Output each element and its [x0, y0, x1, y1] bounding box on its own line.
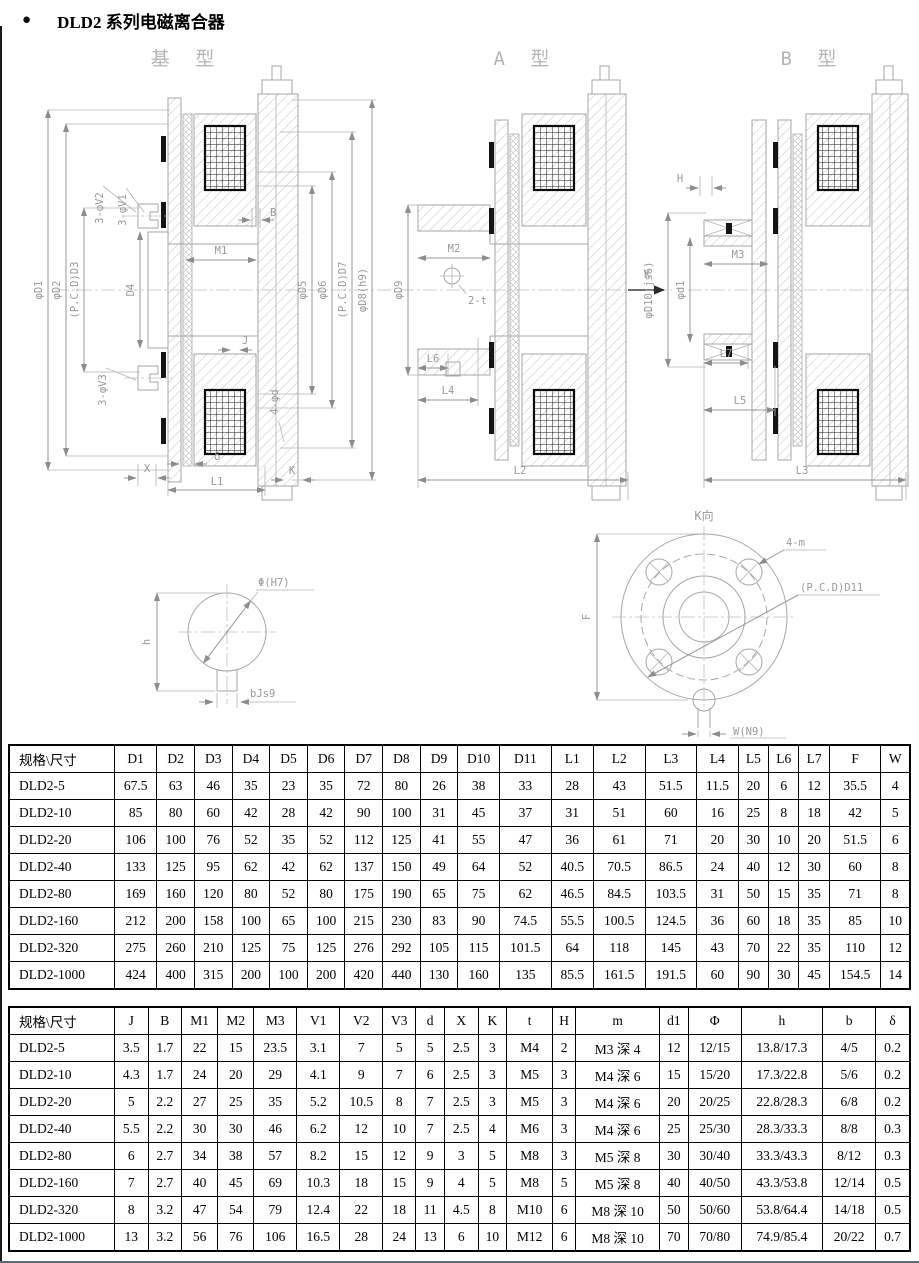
value-cell: 158: [194, 908, 232, 935]
value-cell: 24: [697, 854, 739, 881]
value-cell: 46: [194, 773, 232, 800]
value-cell: 75: [458, 881, 500, 908]
value-cell: 60: [829, 854, 881, 881]
value-cell: 20/25: [688, 1089, 741, 1116]
value-cell: 20: [697, 827, 739, 854]
column-header: V3: [383, 1007, 416, 1035]
value-cell: 86.5: [645, 854, 697, 881]
column-header: L3: [645, 745, 697, 773]
dim-label-D4: D4: [125, 284, 137, 297]
value-cell: 118: [593, 935, 645, 962]
column-header: D9: [420, 745, 458, 773]
value-cell: 7: [416, 1089, 445, 1116]
value-cell: 24: [383, 1224, 416, 1252]
table-row: DLD2-104.31.72420294.19762.53M53M4 深 615…: [9, 1062, 910, 1089]
catalog-page: { "page": { "bullet": "●", "title": "DLD…: [0, 0, 919, 1263]
value-cell: 106: [115, 827, 157, 854]
value-cell: 2.5: [445, 1089, 479, 1116]
value-cell: 85.5: [551, 962, 593, 990]
value-cell: 6.2: [297, 1116, 340, 1143]
value-cell: 6/8: [823, 1089, 876, 1116]
dim-label-K-base: K: [289, 465, 296, 477]
value-cell: 13: [115, 1224, 149, 1252]
value-cell: 101.5: [500, 935, 552, 962]
value-cell: 64: [458, 854, 500, 881]
column-header: K: [478, 1007, 507, 1035]
value-cell: 40.5: [551, 854, 593, 881]
value-cell: 45: [799, 962, 829, 990]
value-cell: 160: [157, 881, 195, 908]
table-row: DLD2-1000133.2567610616.5282413610M126M8…: [9, 1224, 910, 1252]
value-cell: 3: [478, 1035, 507, 1062]
dim-label-2t: 2-t: [468, 295, 487, 307]
dim-label-H: H: [677, 173, 683, 185]
value-cell: 5: [478, 1143, 507, 1170]
value-cell: 22.8/28.3: [741, 1089, 822, 1116]
table-row: DLD2-32027526021012575125276292105115101…: [9, 935, 910, 962]
value-cell: 36: [697, 908, 739, 935]
base-type-view: 基 型: [33, 48, 392, 500]
value-cell: 0.5: [876, 1170, 910, 1197]
value-cell: 12: [340, 1116, 383, 1143]
value-cell: 18: [769, 908, 799, 935]
column-header: t: [507, 1007, 553, 1035]
value-cell: 10: [383, 1116, 416, 1143]
value-cell: 125: [232, 935, 270, 962]
value-cell: 20: [218, 1062, 254, 1089]
value-cell: 50: [659, 1197, 688, 1224]
column-header: b: [823, 1007, 876, 1035]
value-cell: 38: [458, 773, 500, 800]
value-cell: 10: [881, 908, 910, 935]
value-cell: 30: [182, 1116, 218, 1143]
value-cell: 29: [254, 1062, 297, 1089]
value-cell: 161.5: [593, 962, 645, 990]
value-cell: 51.5: [829, 827, 881, 854]
value-cell: 12: [659, 1035, 688, 1062]
value-cell: M8: [507, 1143, 553, 1170]
keyway-dimensions: h Φ(H7) bJs9: [141, 577, 314, 708]
value-cell: 137: [345, 854, 383, 881]
value-cell: 106: [254, 1224, 297, 1252]
value-cell: 424: [115, 962, 157, 990]
value-cell: 6: [115, 1143, 149, 1170]
value-cell: 20: [799, 827, 829, 854]
dim-label-phiD2: φD2: [51, 281, 63, 300]
column-header: m: [576, 1007, 660, 1035]
value-cell: 5: [383, 1035, 416, 1062]
k-direction-view: K向 F 4-m: [581, 508, 880, 738]
value-cell: 64: [551, 935, 593, 962]
value-cell: 169: [115, 881, 157, 908]
value-cell: M3 深 4: [576, 1035, 660, 1062]
dim-label-3phiV2: 3-φV2: [94, 192, 106, 224]
value-cell: 50: [738, 881, 768, 908]
value-cell: 28: [551, 773, 593, 800]
column-header: d1: [659, 1007, 688, 1035]
dim-label-delta: δ: [214, 451, 220, 463]
column-header: d: [416, 1007, 445, 1035]
value-cell: 3: [478, 1089, 507, 1116]
spec-cell: DLD2-1000: [9, 1224, 115, 1252]
value-cell: 56: [182, 1224, 218, 1252]
table-row: DLD2-20106100765235521121254155473661712…: [9, 827, 910, 854]
value-cell: 0.2: [876, 1062, 910, 1089]
value-cell: 67.5: [115, 773, 157, 800]
value-cell: 25: [218, 1089, 254, 1116]
dim-label-phiD5: φD5: [297, 281, 309, 300]
value-cell: 70.5: [593, 854, 645, 881]
value-cell: 45: [218, 1170, 254, 1197]
value-cell: 38: [218, 1143, 254, 1170]
value-cell: 42: [307, 800, 345, 827]
column-header: D5: [270, 745, 308, 773]
column-header: D10: [458, 745, 500, 773]
a-type-view: A 型: [393, 48, 672, 500]
value-cell: 7: [383, 1062, 416, 1089]
value-cell: 5: [115, 1089, 149, 1116]
value-cell: 8/12: [823, 1143, 876, 1170]
spec-cell: DLD2-160: [9, 908, 115, 935]
value-cell: 10.5: [340, 1089, 383, 1116]
value-cell: 40/50: [688, 1170, 741, 1197]
value-cell: 112: [345, 827, 383, 854]
dim-label-WN9: W(N9): [733, 726, 765, 738]
dim-label-B: B: [270, 207, 276, 219]
value-cell: 150: [383, 854, 421, 881]
value-cell: 1.7: [148, 1062, 182, 1089]
value-cell: 12: [799, 773, 829, 800]
spec-cell: DLD2-40: [9, 854, 115, 881]
value-cell: 69: [254, 1170, 297, 1197]
column-header: L4: [697, 745, 739, 773]
value-cell: 5.5: [115, 1116, 149, 1143]
value-cell: 18: [799, 800, 829, 827]
value-cell: 42: [232, 800, 270, 827]
dim-label-pcdD7-label: φD6: [317, 281, 329, 300]
value-cell: 90: [345, 800, 383, 827]
column-header: 规格\尺寸: [9, 1007, 115, 1035]
column-header: L7: [799, 745, 829, 773]
value-cell: 0.2: [876, 1035, 910, 1062]
value-cell: 3: [552, 1089, 576, 1116]
dim-label-L3: L3: [796, 465, 809, 477]
dim-label-phiD1: φD1: [33, 281, 45, 300]
table-row: DLD2-10004244003152001002004204401301601…: [9, 962, 910, 990]
value-cell: 54: [218, 1197, 254, 1224]
column-header: D8: [383, 745, 421, 773]
spec-cell: DLD2-5: [9, 773, 115, 800]
column-header: B: [148, 1007, 182, 1035]
b-body: [688, 66, 912, 500]
value-cell: 4.1: [297, 1062, 340, 1089]
value-cell: 4/5: [823, 1035, 876, 1062]
column-header: V2: [340, 1007, 383, 1035]
value-cell: 315: [194, 962, 232, 990]
column-header: W: [881, 745, 910, 773]
value-cell: 22: [340, 1197, 383, 1224]
column-header: J: [115, 1007, 149, 1035]
value-cell: 215: [345, 908, 383, 935]
value-cell: 14: [881, 962, 910, 990]
value-cell: 74.5: [500, 908, 552, 935]
value-cell: 12: [769, 854, 799, 881]
dim-label-3phiV3: 3-φV3: [97, 374, 109, 406]
value-cell: 2.5: [445, 1116, 479, 1143]
dim-label-pcdD3: (P.C.D)D3: [69, 262, 81, 319]
dim-label-M3: M3: [732, 249, 745, 261]
value-cell: 23: [270, 773, 308, 800]
value-cell: 70: [659, 1224, 688, 1252]
value-cell: 130: [420, 962, 458, 990]
value-cell: 15: [340, 1143, 383, 1170]
value-cell: 8.2: [297, 1143, 340, 1170]
value-cell: 53.8/64.4: [741, 1197, 822, 1224]
value-cell: 25: [659, 1116, 688, 1143]
value-cell: M10: [507, 1197, 553, 1224]
value-cell: 40: [738, 854, 768, 881]
value-cell: 2.2: [148, 1116, 182, 1143]
value-cell: 1.7: [148, 1035, 182, 1062]
dim-label-J: J: [242, 335, 248, 347]
value-cell: M4 深 6: [576, 1089, 660, 1116]
value-cell: 4: [881, 773, 910, 800]
value-cell: 191.5: [645, 962, 697, 990]
value-cell: 0.7: [876, 1224, 910, 1252]
value-cell: 16.5: [297, 1224, 340, 1252]
value-cell: M5 深 8: [576, 1143, 660, 1170]
dim-label-L7: L7: [720, 348, 733, 360]
value-cell: 25: [738, 800, 768, 827]
value-cell: 9: [416, 1143, 445, 1170]
value-cell: 260: [157, 935, 195, 962]
value-cell: 9: [416, 1170, 445, 1197]
value-cell: 15: [769, 881, 799, 908]
value-cell: 125: [157, 854, 195, 881]
value-cell: 71: [829, 881, 881, 908]
table-row: DLD2-10858060422842901003145373151601625…: [9, 800, 910, 827]
value-cell: 2.5: [445, 1035, 479, 1062]
value-cell: 20: [738, 773, 768, 800]
dim-label-L1: L1: [211, 476, 224, 488]
value-cell: 200: [232, 962, 270, 990]
value-cell: 16: [697, 800, 739, 827]
value-cell: 17.3/22.8: [741, 1062, 822, 1089]
table-row: DLD2-8016916012080528017519065756246.584…: [9, 881, 910, 908]
value-cell: 3: [552, 1062, 576, 1089]
value-cell: 12/14: [823, 1170, 876, 1197]
value-cell: 28.3/33.3: [741, 1116, 822, 1143]
spec-cell: DLD2-5: [9, 1035, 115, 1062]
value-cell: 51.5: [645, 773, 697, 800]
value-cell: M4 深 6: [576, 1062, 660, 1089]
value-cell: 0.5: [876, 1197, 910, 1224]
value-cell: M8: [507, 1170, 553, 1197]
value-cell: 100: [307, 908, 345, 935]
page-title: DLD2 系列电磁离合器: [57, 8, 225, 33]
dim-label-L5: L5: [734, 395, 747, 407]
value-cell: 27: [182, 1089, 218, 1116]
value-cell: 31: [551, 800, 593, 827]
column-header: M1: [182, 1007, 218, 1035]
value-cell: 0.2: [876, 1089, 910, 1116]
dim-label-L4: L4: [442, 385, 455, 397]
value-cell: 31: [420, 800, 458, 827]
value-cell: 20/22: [823, 1224, 876, 1252]
value-cell: 200: [307, 962, 345, 990]
value-cell: 105: [420, 935, 458, 962]
value-cell: 35: [799, 881, 829, 908]
value-cell: 42: [829, 800, 881, 827]
value-cell: 80: [307, 881, 345, 908]
value-cell: 52: [232, 827, 270, 854]
table-row: DLD2-2052.22725355.210.5872.53M53M4 深 62…: [9, 1089, 910, 1116]
value-cell: 30: [218, 1116, 254, 1143]
value-cell: 4: [445, 1170, 479, 1197]
value-cell: 74.9/85.4: [741, 1224, 822, 1252]
value-cell: 37: [500, 800, 552, 827]
value-cell: M5: [507, 1089, 553, 1116]
value-cell: 90: [458, 908, 500, 935]
column-header: D2: [157, 745, 195, 773]
column-header: D1: [115, 745, 157, 773]
spec-cell: DLD2-80: [9, 881, 115, 908]
spec-cell: DLD2-10: [9, 1062, 115, 1089]
column-header: D3: [194, 745, 232, 773]
value-cell: 62: [500, 881, 552, 908]
column-header: M2: [218, 1007, 254, 1035]
dim-label-phid1: φd1: [675, 281, 687, 300]
value-cell: 80: [157, 800, 195, 827]
value-cell: 80: [232, 881, 270, 908]
value-cell: 85: [829, 908, 881, 935]
technical-drawings: 基 型: [0, 36, 919, 742]
value-cell: 62: [307, 854, 345, 881]
dim-label-phiH7: Φ(H7): [258, 577, 290, 589]
value-cell: 4.3: [115, 1062, 149, 1089]
column-header: V1: [297, 1007, 340, 1035]
dimensions-table-2: 规格\尺寸JBM1M2M3V1V2V3dXKtHmd1ΦhbδDLD2-53.5…: [8, 1006, 911, 1252]
value-cell: 24: [182, 1062, 218, 1089]
value-cell: 124.5: [645, 908, 697, 935]
value-cell: M6: [507, 1116, 553, 1143]
value-cell: 5: [552, 1170, 576, 1197]
value-cell: 7: [416, 1116, 445, 1143]
column-header: D11: [500, 745, 552, 773]
value-cell: 95: [194, 854, 232, 881]
value-cell: 65: [270, 908, 308, 935]
column-header: D7: [345, 745, 383, 773]
b-type-view: B 型: [643, 48, 912, 500]
value-cell: 6: [416, 1062, 445, 1089]
value-cell: M5: [507, 1062, 553, 1089]
value-cell: 8/8: [823, 1116, 876, 1143]
value-cell: 18: [340, 1170, 383, 1197]
dim-label-phiD10: φD10(js6): [643, 262, 655, 319]
value-cell: 72: [345, 773, 383, 800]
value-cell: 42: [270, 854, 308, 881]
column-header: M3: [254, 1007, 297, 1035]
value-cell: 276: [345, 935, 383, 962]
value-cell: 230: [383, 908, 421, 935]
value-cell: 30: [738, 827, 768, 854]
value-cell: 145: [645, 935, 697, 962]
value-cell: 115: [458, 935, 500, 962]
value-cell: 47: [500, 827, 552, 854]
value-cell: 10: [478, 1224, 507, 1252]
value-cell: 30/40: [688, 1143, 741, 1170]
value-cell: 25/30: [688, 1116, 741, 1143]
spec-cell: DLD2-20: [9, 1089, 115, 1116]
value-cell: 3: [552, 1116, 576, 1143]
value-cell: 50/60: [688, 1197, 741, 1224]
value-cell: 100: [157, 827, 195, 854]
value-cell: 60: [645, 800, 697, 827]
value-cell: 120: [194, 881, 232, 908]
value-cell: 43: [697, 935, 739, 962]
value-cell: 33: [500, 773, 552, 800]
value-cell: 133: [115, 854, 157, 881]
value-cell: 35: [232, 773, 270, 800]
value-cell: 3.2: [148, 1197, 182, 1224]
value-cell: 7: [340, 1035, 383, 1062]
value-cell: 8: [881, 854, 910, 881]
kview-dimensions: F 4-m (P.C.D)D11 W(N9): [581, 534, 880, 738]
value-cell: 12: [383, 1143, 416, 1170]
value-cell: 2.7: [148, 1143, 182, 1170]
value-cell: 60: [194, 800, 232, 827]
dim-label-F: F: [581, 614, 593, 620]
value-cell: 31: [697, 881, 739, 908]
value-cell: 5: [416, 1035, 445, 1062]
dim-label-h: h: [141, 639, 153, 645]
keyway-detail-view: h Φ(H7) bJs9: [141, 577, 314, 708]
value-cell: 34: [182, 1143, 218, 1170]
value-cell: 275: [115, 935, 157, 962]
value-cell: 22: [769, 935, 799, 962]
value-cell: 35: [270, 827, 308, 854]
value-cell: 400: [157, 962, 195, 990]
k-view-label: K向: [694, 508, 713, 523]
bullet-icon: ●: [22, 13, 31, 28]
value-cell: 18: [383, 1197, 416, 1224]
table-row: DLD2-8062.73438578.21512935M83M5 深 83030…: [9, 1143, 910, 1170]
value-cell: 33.3/43.3: [741, 1143, 822, 1170]
value-cell: 3: [445, 1143, 479, 1170]
value-cell: 2.7: [148, 1170, 182, 1197]
column-header: D4: [232, 745, 270, 773]
value-cell: 35: [799, 935, 829, 962]
value-cell: M4 深 6: [576, 1116, 660, 1143]
value-cell: 10: [769, 827, 799, 854]
column-header: X: [445, 1007, 479, 1035]
value-cell: 30: [769, 962, 799, 990]
dim-label-4m: 4-m: [786, 537, 805, 549]
dim-label-X: X: [144, 463, 151, 475]
value-cell: 41: [420, 827, 458, 854]
value-cell: 40: [182, 1170, 218, 1197]
value-cell: 15: [383, 1170, 416, 1197]
value-cell: 13: [416, 1224, 445, 1252]
value-cell: 110: [829, 935, 881, 962]
column-header: H: [552, 1007, 576, 1035]
dim-label-4phid: 4-φd: [269, 389, 281, 414]
value-cell: 2: [552, 1035, 576, 1062]
value-cell: M12: [507, 1224, 553, 1252]
value-cell: 8: [115, 1197, 149, 1224]
value-cell: 49: [420, 854, 458, 881]
dim-label-M1: M1: [215, 245, 228, 257]
